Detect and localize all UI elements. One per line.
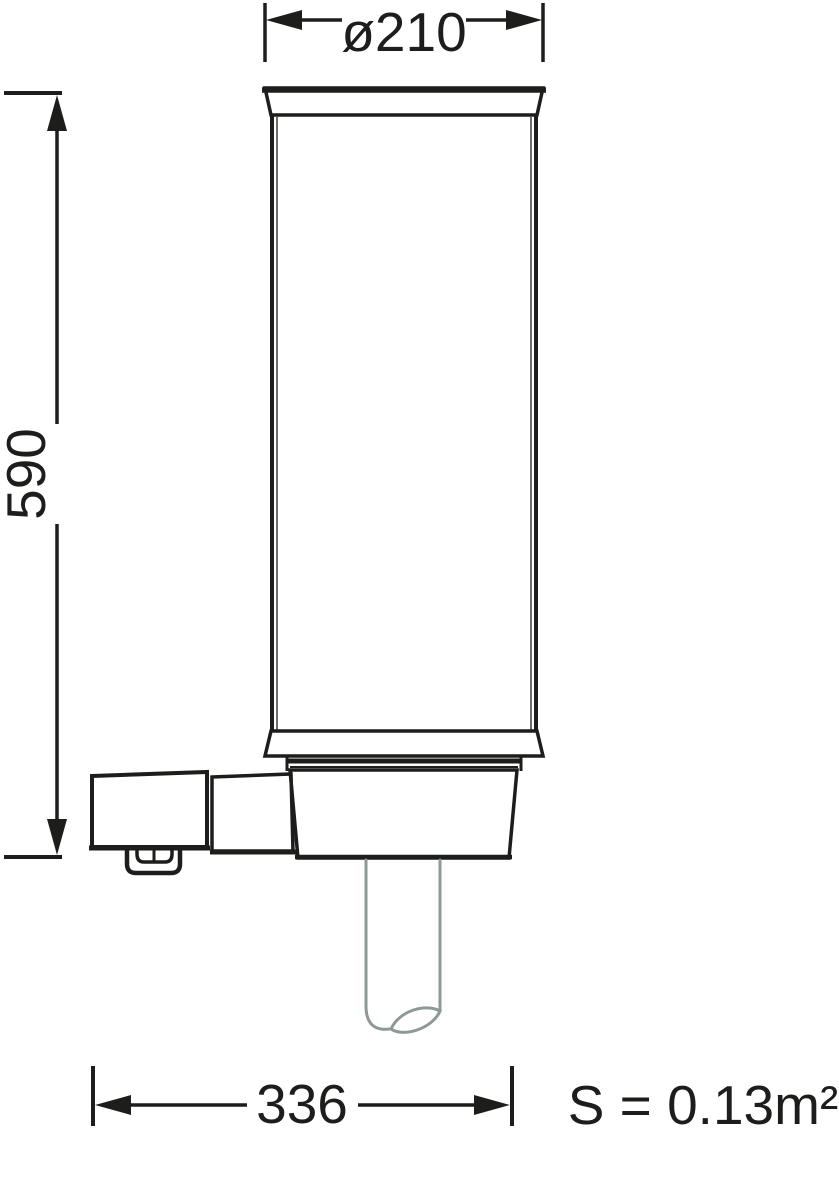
cylinder-body-outline (272, 115, 536, 731)
pole-left-edge (366, 860, 389, 1029)
technical-drawing-page: ø210 590 336 S = 0.13m² (0, 0, 839, 1200)
cylinder-body-inner-lines (277, 117, 531, 730)
width-dimension: 336 (93, 1066, 512, 1135)
height-dimension: 590 (0, 93, 67, 857)
width-arrow-right-icon (474, 1095, 510, 1115)
pole-break-line-icon (391, 1008, 440, 1032)
luminaire-bottom-flange (265, 731, 543, 756)
bracket-outer-box (92, 772, 207, 847)
width-dimension-label: 336 (256, 1073, 348, 1135)
luminaire-outline (262, 88, 546, 858)
mounting-bracket (89, 772, 297, 873)
height-arrow-bottom-icon (47, 819, 67, 855)
luminaire-dimension-drawing: ø210 590 336 S = 0.13m² (0, 0, 839, 1200)
diameter-arrow-left-icon (266, 10, 302, 30)
height-dimension-label: 590 (0, 428, 57, 520)
height-arrow-top-icon (47, 95, 67, 131)
base-housing (290, 770, 517, 858)
surface-area-label: S = 0.13m² (568, 1074, 839, 1136)
diameter-arrow-right-icon (506, 10, 542, 30)
bracket-inner-box (212, 774, 293, 851)
diameter-dimension-label: ø210 (341, 1, 466, 63)
diameter-dimension: ø210 (265, 1, 543, 63)
pole (366, 860, 440, 1032)
width-arrow-left-icon (95, 1095, 131, 1115)
